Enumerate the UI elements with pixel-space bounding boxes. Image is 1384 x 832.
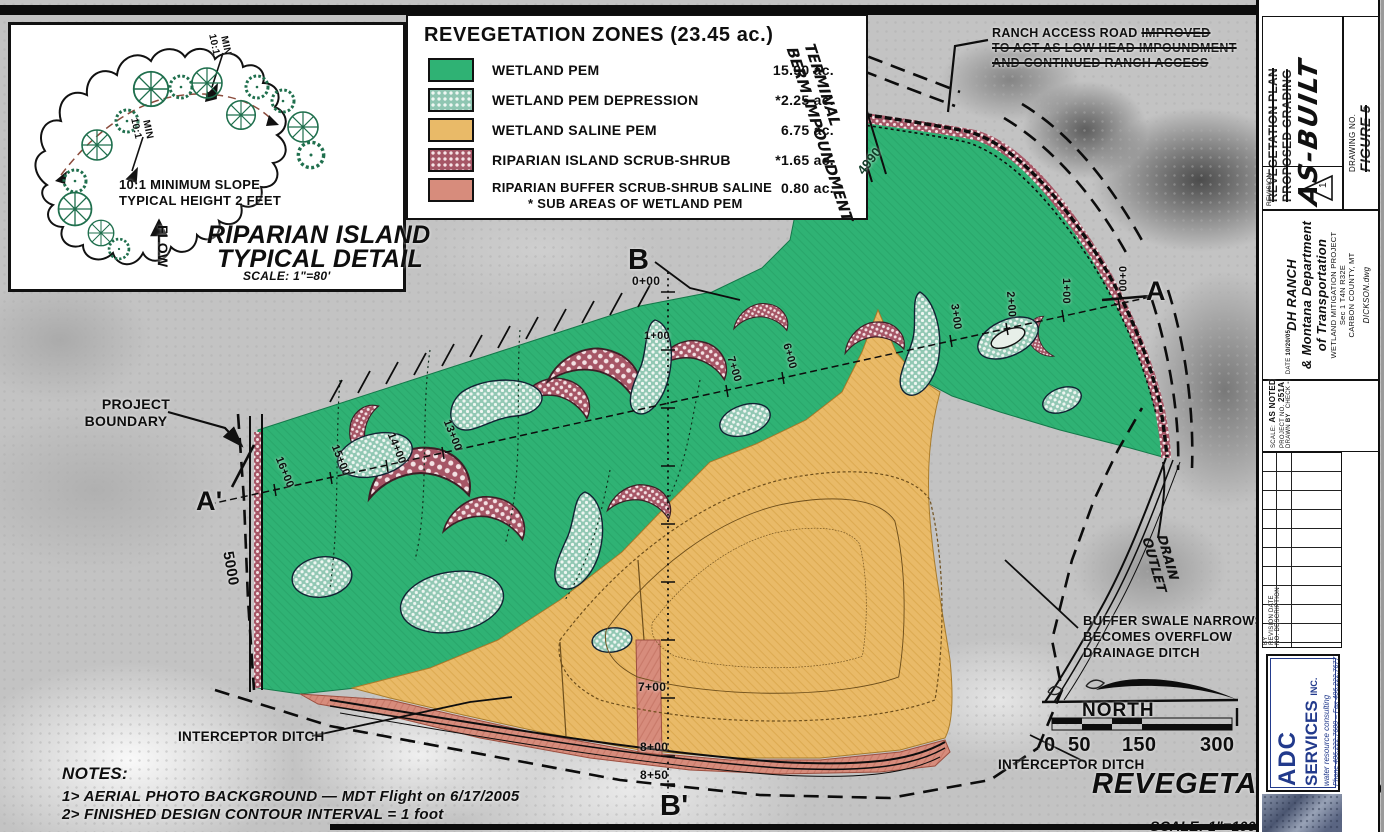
- project-line1: WETLAND MITIGATION PROJECT: [1329, 214, 1338, 376]
- project-boundary-label-line2: BOUNDARY: [66, 413, 186, 429]
- legend-swatch-saline-pem: [428, 118, 474, 142]
- client-project-block: DH RANCH & Montana Department of Transpo…: [1284, 214, 1371, 376]
- project-boundary-label-line1: PROJECT: [86, 396, 186, 412]
- rev-header-desc: NO. DESCRIPTION: [1275, 455, 1281, 645]
- project-line2: Sec 1 T4N R32E: [1338, 214, 1347, 376]
- slope-note-line2: TYPICAL HEIGHT 2 FEET: [119, 193, 281, 208]
- drawn-label: DRAWN: [1286, 424, 1292, 448]
- note-1: 1> AERIAL PHOTO BACKGROUND — MDT Flight …: [62, 788, 519, 805]
- legend-panel: REVEGETATION ZONES (23.45 ac.) WETLAND P…: [406, 14, 868, 220]
- check-value: --: [1286, 379, 1292, 384]
- note-2: 2> FINISHED DESIGN CONTOUR INTERVAL = 1 …: [62, 806, 444, 823]
- scalebar-150: 150: [1122, 734, 1156, 757]
- drawn-value: BY: [1286, 413, 1292, 422]
- station-b-85: 8+50: [640, 768, 668, 782]
- adc-services-word: SERVICES: [1302, 700, 1321, 786]
- slope-note-line1: 10:1 MINIMUM SLOPE: [119, 177, 260, 192]
- field-project-no: PROJECT NO. 251A: [1277, 384, 1286, 448]
- section-marker-b: B: [628, 244, 649, 277]
- legend-swatch-wetland-pem: [428, 58, 474, 82]
- buffer-swale-note-line2: BECOMES OVERFLOW: [1083, 629, 1232, 644]
- scale-value: AS NOTED: [1268, 379, 1277, 423]
- field-drawn-check-date: DRAWN BY CHECK -- DATE 10/20/05: [1286, 384, 1292, 448]
- section-marker-b-prime: B': [660, 790, 688, 823]
- adc-name-line1: ADC: [1274, 660, 1302, 786]
- station-a-1: 1+00: [1060, 278, 1072, 304]
- ranch-access-callout-line2: TO ACT AS LOW HEAD IMPOUNDMENT: [992, 41, 1237, 55]
- station-a-0: 0+00: [1116, 266, 1128, 292]
- north-arrow: [1042, 679, 1238, 702]
- file-name: DICKSON.dwg: [1362, 214, 1371, 376]
- legend-label-pem-depression: WETLAND PEM DEPRESSION: [492, 92, 699, 108]
- revision-triangle-icon: 1: [1302, 172, 1336, 204]
- project-no-value: 251A: [1277, 382, 1286, 402]
- scalebar-300: 300: [1200, 734, 1234, 757]
- flow-label: FLOW: [155, 225, 171, 267]
- check-label: CHECK: [1286, 386, 1292, 409]
- scalebar-50: 50: [1068, 734, 1091, 757]
- scalebar-0: 0: [1044, 734, 1055, 757]
- section-marker-a-prime: A': [196, 486, 223, 517]
- drawing-no-block: DRAWING NO. FIGURE 5: [1348, 22, 1373, 172]
- ranch-access-callout-line1: RANCH ACCESS ROAD IMPROVED: [992, 26, 1210, 40]
- adc-text-block: ADC SERVICES INC. water resource consult…: [1274, 660, 1340, 786]
- north-label: NORTH: [1082, 700, 1155, 722]
- station-a-2: 2+00: [1004, 291, 1018, 318]
- adc-inc-word: INC.: [1309, 678, 1319, 696]
- legend-swatch-pem-depression: [428, 88, 474, 112]
- revision-label: REVISION: [1266, 170, 1273, 206]
- sheet-bottom-border: [330, 824, 1258, 830]
- legend-acreage-riparian-buffer: 0.80 ac.: [738, 180, 834, 196]
- station-b-8: 8+00: [640, 740, 668, 754]
- adc-name-line2: SERVICES INC.: [1302, 660, 1322, 786]
- adc-tagline: water resource consulting: [1322, 660, 1331, 786]
- inset-scale: SCALE: 1"=80': [243, 269, 330, 283]
- legend-label-saline-pem: WETLAND SALINE PEM: [492, 122, 657, 138]
- legend-swatch-riparian-island: [428, 148, 474, 172]
- legend-swatch-riparian-buffer: [428, 178, 474, 202]
- buffer-swale-note-line1: BUFFER SWALE NARROWS: [1083, 613, 1264, 628]
- client-line3: of Transportation: [1314, 214, 1329, 376]
- date-label: DATE: [1286, 357, 1292, 374]
- ranch-access-plain: RANCH ACCESS ROAD: [992, 26, 1138, 40]
- legend-label-riparian-island: RIPARIAN ISLAND SCRUB-SHRUB: [492, 152, 731, 168]
- ranch-access-strike1: IMPROVED: [1141, 26, 1210, 40]
- buffer-band-bline: [636, 640, 662, 755]
- adc-photo-patch: [1262, 794, 1342, 832]
- legend-label-wetland-pem: WETLAND PEM: [492, 62, 600, 78]
- client-line2: & Montana Department: [1299, 214, 1314, 376]
- sheet-top-border: [0, 5, 1258, 15]
- ranch-access-callout-line3: AND CONTINUED RANCH ACCESS: [992, 56, 1208, 70]
- legend-title: REVEGETATION ZONES (23.45 ac.): [424, 24, 774, 47]
- notes-heading: NOTES:: [62, 764, 128, 784]
- field-scale: SCALE: AS NOTED: [1268, 384, 1277, 448]
- svg-text:1: 1: [1318, 182, 1329, 188]
- legend-label-riparian-buffer: RIPARIAN BUFFER SCRUB-SHRUB SALINE: [492, 180, 772, 195]
- section-marker-a: A: [1146, 276, 1166, 307]
- date-value: 10/20/05: [1286, 330, 1292, 356]
- station-b-1: 1+00: [644, 330, 670, 342]
- legend-footnote: * SUB AREAS OF WETLAND PEM: [528, 196, 743, 211]
- station-b-7: 7+00: [638, 680, 666, 694]
- figure-number: FIGURE 5: [1357, 22, 1373, 172]
- station-b-0: 0+00: [632, 274, 660, 288]
- scanned-plan-sheet: 10:1 MIN 10:1 MIN 10:1 MINIMUM SLOPE TYP…: [0, 0, 1384, 832]
- fields-block: SCALE: AS NOTED PROJECT NO. 251A DRAWN B…: [1268, 384, 1292, 448]
- project-line3: CARBON COUNTY, MT: [1347, 214, 1356, 376]
- interceptor-ditch-label-left: INTERCEPTOR DITCH: [178, 729, 325, 744]
- buffer-swale-note-line3: DRAINAGE DITCH: [1083, 645, 1200, 660]
- adc-contact: Phone 406.222.7600 – Fax 406.222.7677: [1333, 660, 1340, 786]
- revision-table-headers: BY REVISION DATE NO. DESCRIPTION: [1263, 455, 1281, 645]
- titleblock-top-divider: [1342, 16, 1344, 210]
- riparian-island-detail-inset: 10:1 MIN 10:1 MIN 10:1 MINIMUM SLOPE TYP…: [8, 22, 406, 292]
- drawing-no-label: DRAWING NO.: [1348, 22, 1357, 172]
